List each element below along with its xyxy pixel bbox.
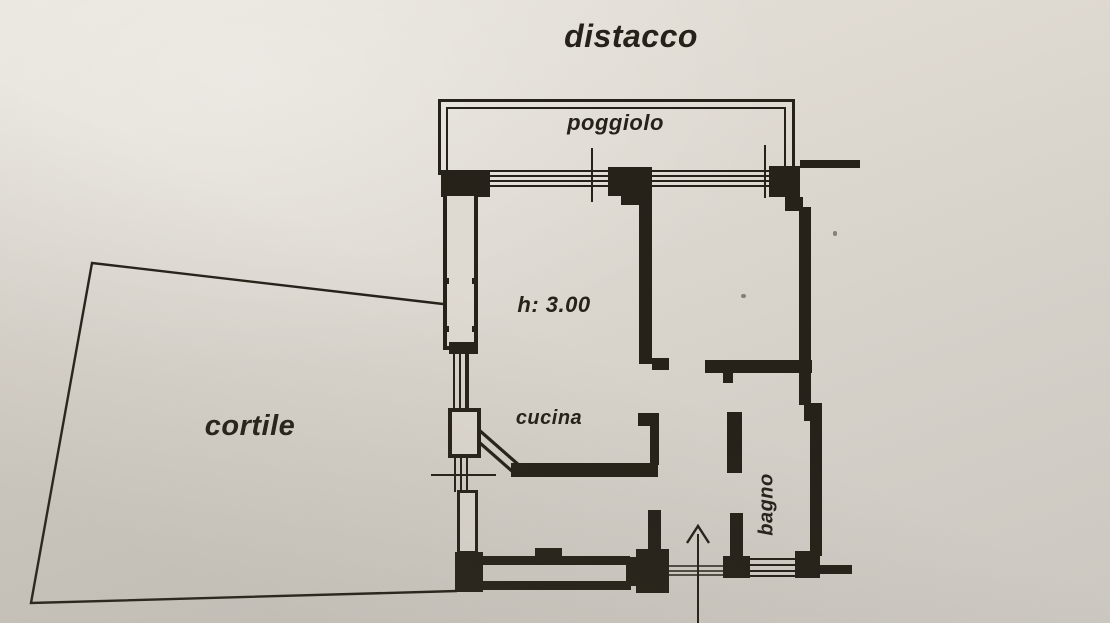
wall-cucina-right-tab xyxy=(638,413,652,426)
window-left-upper xyxy=(453,352,469,410)
wall-joint-tick xyxy=(443,326,449,332)
wall-cucina-horizontal xyxy=(511,463,658,477)
wall-joint-tick xyxy=(472,278,478,284)
entrance-threshold xyxy=(668,566,723,575)
wall-bagno-corner xyxy=(795,551,820,578)
wall-bottom-right-extension xyxy=(820,565,852,574)
wall-room-divider xyxy=(639,196,652,364)
window-left-middle xyxy=(454,456,468,492)
scan-speck xyxy=(833,231,837,236)
label-room-height: h: 3.00 xyxy=(508,292,600,318)
wall-joint-tick xyxy=(472,326,478,332)
wall-bagno-left-lower xyxy=(730,513,743,556)
wall-hall-stub xyxy=(648,510,661,550)
wall-top-center-pier xyxy=(608,167,652,196)
label-distacco: distacco xyxy=(556,18,706,55)
window-top-right xyxy=(652,170,769,187)
floor-plan-page: distacco poggiolo h: 3.00 cucina cortile… xyxy=(0,0,1110,623)
wall-bagno-left-upper xyxy=(727,412,742,473)
wall-bottom-top-line xyxy=(478,556,630,565)
label-cucina: cucina xyxy=(507,407,591,430)
wall-bottom-bottom-line xyxy=(461,581,631,590)
wall-right-upper xyxy=(799,207,811,405)
window-left-lower-frame xyxy=(457,490,478,554)
label-poggiolo: poggiolo xyxy=(558,110,673,136)
entrance-arrow-icon xyxy=(687,526,709,623)
label-cortile: cortile xyxy=(188,410,312,443)
wall-left-pier xyxy=(448,408,481,458)
window-top-left xyxy=(489,170,608,187)
wall-bagno-top xyxy=(705,360,812,373)
wall-top-right-extension xyxy=(800,160,860,168)
wall-top-right-corner xyxy=(769,166,800,197)
wall-bagno-top-tab xyxy=(723,373,733,383)
wall-bottom-step xyxy=(535,548,562,557)
scan-speck xyxy=(741,294,746,298)
wall-right-lower xyxy=(810,420,822,556)
wall-entry-pier-tab xyxy=(626,557,637,586)
wall-right-jog xyxy=(804,403,822,421)
window-bagno xyxy=(750,558,795,577)
wall-bagno-entry-block xyxy=(723,556,750,578)
label-bagno: bagno xyxy=(756,468,779,542)
wall-entry-pier xyxy=(636,549,669,593)
wall-joint-tick xyxy=(443,278,449,284)
wall-room-divider-foot xyxy=(652,358,669,370)
